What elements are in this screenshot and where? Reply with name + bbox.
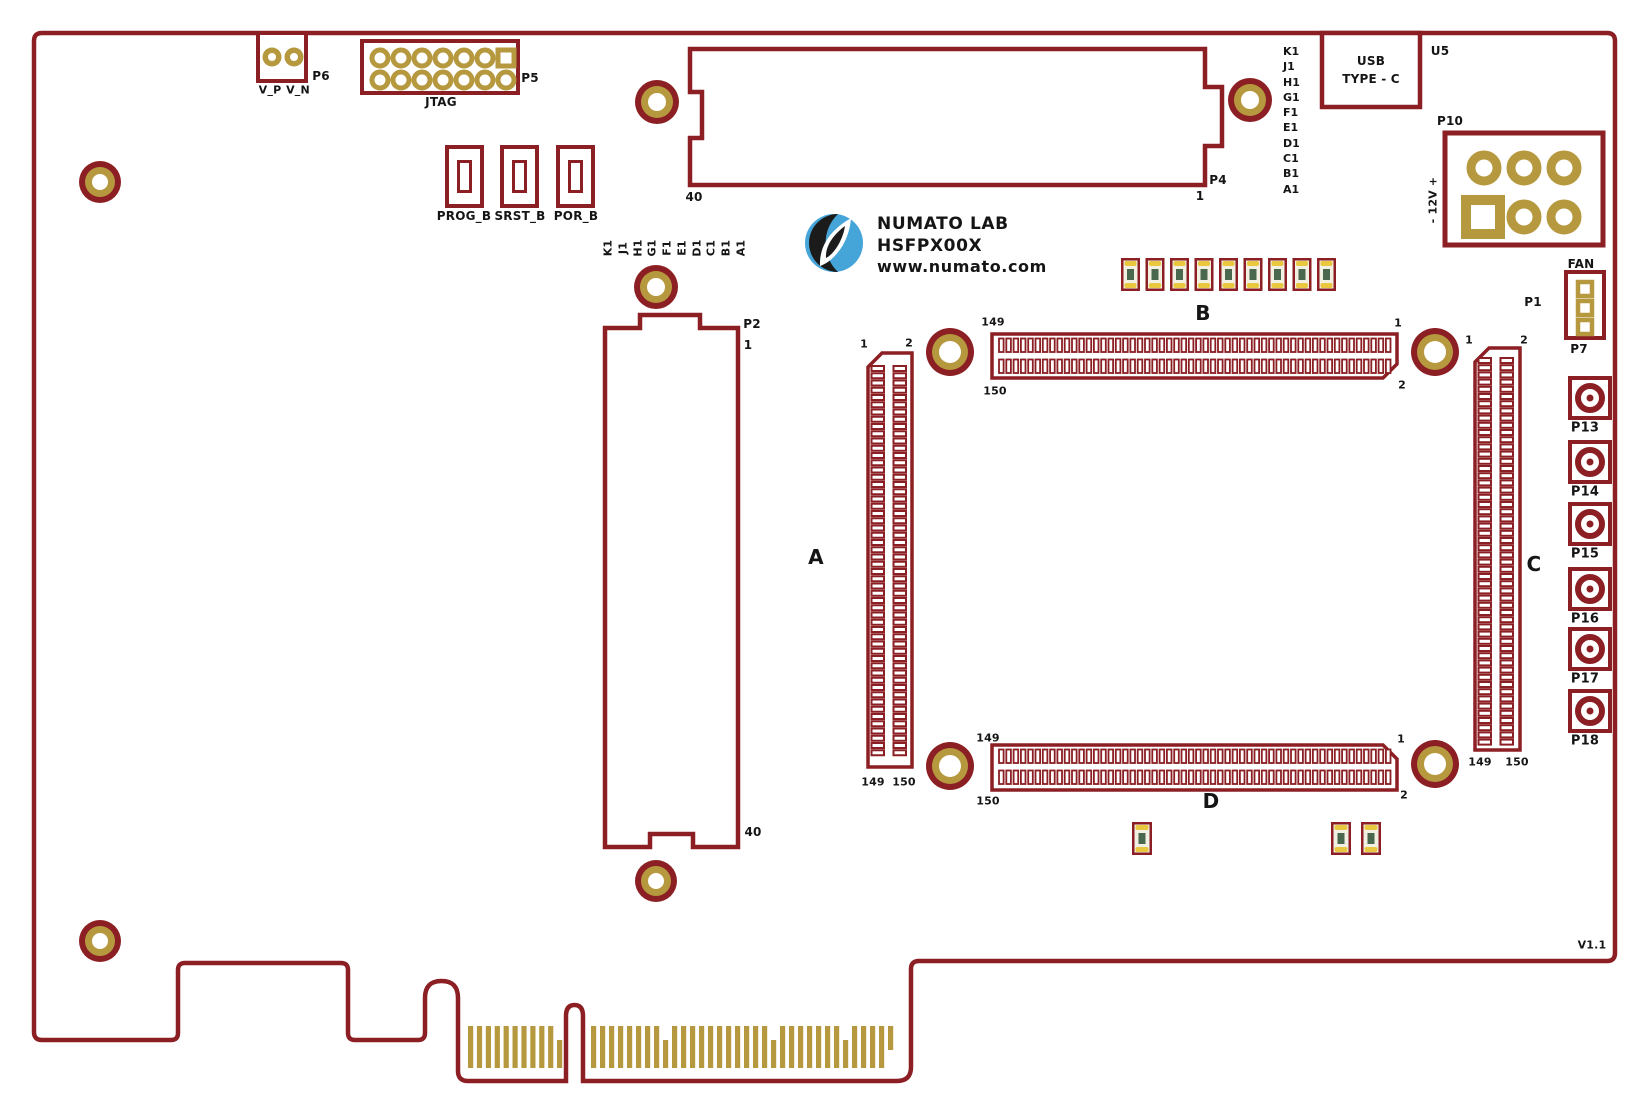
connector-pad [1276,750,1281,764]
switch-label-por-b: POR_B [554,210,598,222]
connector-pad [1233,360,1238,374]
p4-signal-d1: D1 [1283,138,1300,149]
connector-pad [1479,718,1492,723]
connector-pad [1079,750,1084,764]
pcie-gold-finger [798,1026,803,1068]
coax-port-label-p18: P18 [1571,735,1599,748]
connector-pad [1479,531,1492,536]
connector-pad [1006,360,1011,374]
connector-pad [1276,360,1281,374]
connector-pad [1101,360,1106,374]
connector-pad [1501,725,1514,730]
pcie-gold-finger [636,1026,641,1068]
connector-pad [1028,339,1033,353]
connector-pad [1021,771,1026,785]
board-outline [34,33,1615,1081]
connector-pad [894,685,907,690]
connector-pad [1196,771,1201,785]
jtag-hole [393,72,409,88]
connector-pad [1160,750,1165,764]
connector-pad [1364,339,1369,353]
p2-pin1-label: 1 [744,339,753,351]
p4-signal-a1: A1 [1283,184,1300,195]
led-terminal [1247,283,1259,288]
jtag-hole [477,50,493,66]
connector-pad [1276,771,1281,785]
connector-pad [1247,771,1252,785]
connector-pad [894,402,907,407]
a-pin1: 1 [860,339,868,350]
connector-pad [1152,771,1157,785]
connector-pad [872,671,885,676]
pcie-gold-finger [618,1026,623,1068]
p10-polarity-label: - 12V + [1428,177,1439,224]
connector-pad [1357,360,1362,374]
connector-pad [1298,360,1303,374]
connector-pad [1094,339,1099,353]
p10-ref: P10 [1437,115,1463,127]
led-terminal [1223,261,1235,266]
led-die [1274,269,1281,280]
connector-pad [894,431,907,436]
connector-pad [1479,380,1492,385]
connector-pad [872,562,885,567]
numato-logo-icon [805,214,863,272]
connector-p2 [605,315,738,847]
connector-pad [894,504,907,509]
connector-pad [1501,480,1514,485]
p4-ref: P4 [1209,174,1227,186]
connector-pad [872,555,885,560]
connector-pad [1501,444,1514,449]
connector-pad [999,771,1004,785]
led-terminal [1136,847,1149,852]
connector-pad [894,540,907,545]
connector-pad [894,584,907,589]
connector-pad [1479,675,1492,680]
connector-pad [1057,360,1062,374]
connector-pad [1501,423,1514,428]
p4-signal-g1: G1 [1283,92,1300,103]
led-terminal [1125,261,1137,266]
mounting-hole-bore [648,873,664,889]
connector-pad [1479,401,1492,406]
pcie-gold-finger [468,1026,473,1068]
pcie-gold-finger [591,1026,596,1068]
connector-pad [1298,771,1303,785]
c-pin150: 150 [1505,757,1529,768]
connector-pad [1335,771,1340,785]
connector-pad [1501,740,1514,745]
connector-pad [1036,750,1041,764]
led-terminal [1321,261,1333,266]
connector-pad [872,468,885,473]
connector-pad [1043,771,1048,785]
connector-pad [872,518,885,523]
connector-pad [1094,750,1099,764]
connector-pad [1116,771,1121,785]
switch-label-prog-b: PROG_B [437,210,491,222]
connector-pad [1479,552,1492,557]
connector-pad [1501,567,1514,572]
pcie-gold-finger [504,1026,509,1068]
connector-pad [1225,339,1230,353]
connector-pad [1501,732,1514,737]
connector-pad [1160,771,1165,785]
connector-pad [1501,603,1514,608]
connector-pad [1479,624,1492,629]
connector-pad [1109,360,1114,374]
connector-pad [1501,653,1514,658]
connector-pad [894,453,907,458]
connector-pad [1479,430,1492,435]
connector-pad [872,613,885,618]
jtag-hole [435,50,451,66]
connector-pad [1218,771,1223,785]
p4-signal-e1: E1 [1283,122,1300,133]
pcie-gold-finger [513,1026,518,1068]
pcie-gold-finger [744,1026,749,1068]
connector-pad [894,678,907,683]
connector-pad [1501,610,1514,615]
connector-pad [1501,416,1514,421]
connector-pad [1014,360,1019,374]
p6-pin-vn-label: V_N [286,85,310,96]
connector-pad [872,721,885,726]
connector-pad [894,395,907,400]
d-pin2: 2 [1400,790,1408,801]
b-pin149: 149 [981,317,1005,328]
led-terminal [1149,283,1161,288]
led-terminal [1174,261,1186,266]
led-die [1368,833,1375,844]
led-die [1323,269,1330,280]
connector-pad [872,678,885,683]
connector-pad [1043,360,1048,374]
a-pin149: 149 [861,777,885,788]
connector-pad [1501,394,1514,399]
connector-pad [1036,360,1041,374]
connector-pad [1335,360,1340,374]
connector-pad [1479,480,1492,485]
connector-pad [1379,771,1384,785]
pcie-gold-finger [834,1026,839,1068]
connector-pad [1342,360,1347,374]
connector-pad [1057,339,1062,353]
connector-pad [1182,339,1187,353]
connector-pad [1087,750,1092,764]
connector-pad [1072,750,1077,764]
connector-pad [1306,771,1311,785]
jtag-hole [393,50,409,66]
connector-pad [894,620,907,625]
connector-pad [872,634,885,639]
connector-pad [872,576,885,581]
connector-pad [1479,704,1492,709]
connector-pad [872,453,885,458]
led-terminal [1136,825,1149,830]
connector-pad [1021,750,1026,764]
connector-pad [1152,750,1157,764]
connector-pad [1043,750,1048,764]
p4-signal-b1: B1 [1283,168,1300,179]
connector-pad [1342,339,1347,353]
connector-pad [1479,495,1492,500]
connector-pad [1501,488,1514,493]
connector-pad [1101,750,1106,764]
p6-pin-vp-label: V_P [259,85,282,96]
pcie-gold-finger [825,1026,830,1068]
connector-pad [1501,502,1514,507]
connector-pad [1028,360,1033,374]
connector-pad [872,460,885,465]
connector-pad [1501,617,1514,622]
connector-pad [1479,668,1492,673]
connector-pad [1240,339,1245,353]
connector-pad [1152,360,1157,374]
led-die [1250,269,1257,280]
connector-pad [1349,771,1354,785]
mounting-hole-bore [648,93,666,111]
connector-pad [872,482,885,487]
connector-pad [1291,339,1296,353]
usb-ref: U5 [1431,45,1450,57]
connector-pad [1479,725,1492,730]
connector-pad [1174,360,1179,374]
connector-pad [1196,750,1201,764]
led-terminal [1247,261,1259,266]
connector-pad [1218,360,1223,374]
pcie-gold-finger [486,1026,491,1068]
connector-pad [1313,339,1318,353]
connector-pad [1479,596,1492,601]
pcie-gold-finger [690,1026,695,1068]
connector-pad [894,475,907,480]
led-terminal [1321,283,1333,288]
connector-pad [1349,339,1354,353]
connector-pad [1189,360,1194,374]
coax-port-label-p15: P15 [1571,548,1599,561]
connector-pad [894,489,907,494]
usb-label-line2: TYPE - C [1342,73,1400,85]
switch-prog-b [447,147,482,206]
connector-pad [1479,538,1492,543]
connector-pad [1501,509,1514,514]
connector-pad [872,729,885,734]
pcie-gold-finger [735,1026,740,1068]
connector-pad [1479,365,1492,370]
connector-pad [1065,360,1070,374]
connector-pad [1057,771,1062,785]
connector-pad [1021,360,1026,374]
led-die [1127,269,1134,280]
connector-pad [894,468,907,473]
p4-pin1-label: 1 [1196,190,1205,202]
connector-pad [894,627,907,632]
connector-pad [1284,360,1289,374]
connector-pad [894,482,907,487]
connector-pad [1501,581,1514,586]
connector-pad [872,446,885,451]
pcie-gold-finger [717,1026,722,1068]
led-die [1152,269,1159,280]
connector-pad [894,634,907,639]
led-terminal [1272,283,1284,288]
connector-pad [872,475,885,480]
connector-pad [1087,360,1092,374]
connector-pad [1109,771,1114,785]
connector-pad [1357,771,1362,785]
mounting-hole-bore [92,174,108,190]
connector-pad [894,555,907,560]
connector-pad [1196,360,1201,374]
connector-pad [894,511,907,516]
c-pin1: 1 [1465,335,1473,346]
connector-pad [1262,771,1267,785]
connector-pad [1262,750,1267,764]
connector-pad [1479,387,1492,392]
pcie-gold-finger [654,1026,659,1068]
connector-pad [1138,750,1143,764]
connector-pad [1291,360,1296,374]
connector-pad [872,424,885,429]
connector-pad [1479,660,1492,665]
pcie-gold-finger [663,1040,668,1068]
connector-pad [1284,771,1289,785]
connector-pad [1145,771,1150,785]
connector-pad [1501,632,1514,637]
connector-pad [1386,771,1391,785]
connector-pad [1130,750,1135,764]
connector-pad [1479,632,1492,637]
connector-pad [1189,771,1194,785]
connector-pad [1006,339,1011,353]
pcie-gold-finger [627,1026,632,1068]
connector-pad [894,721,907,726]
connector-pad [1306,360,1311,374]
connector-pad [1342,750,1347,764]
connector-pad [872,649,885,654]
mounting-hole-bore [647,278,665,296]
connector-pad [894,707,907,712]
connector-pad [872,584,885,589]
mounting-hole-bore [939,341,961,363]
connector-pad [1501,704,1514,709]
connector-pad [1313,360,1318,374]
connector-pad [1501,588,1514,593]
pcie-gold-finger [807,1026,812,1068]
connector-pad [1379,339,1384,353]
connector-pad [1240,750,1245,764]
connector-pad [894,446,907,451]
led-die [1201,269,1208,280]
connector-pad [872,663,885,668]
connector-pad [872,743,885,748]
connector-pad [1101,771,1106,785]
connector-pad [1386,360,1391,374]
connector-pad [894,671,907,676]
connector-pad [1218,339,1223,353]
connector-pad [1021,339,1026,353]
connector-pad [872,497,885,502]
pcie-gold-finger [753,1026,758,1068]
connector-pad [1386,339,1391,353]
p4-signal-f1: F1 [1283,107,1300,118]
connector-pad [1094,360,1099,374]
connector-pad [1479,459,1492,464]
led-terminal [1335,847,1348,852]
connector-pad [894,743,907,748]
connector-pad [1479,488,1492,493]
mounting-hole-bore [1241,91,1259,109]
connector-pad [872,598,885,603]
mounting-hole-bore [92,933,108,949]
connector-pad [1320,360,1325,374]
coax-center-pin [1587,708,1594,715]
product-name: HSFPX00X [877,238,982,255]
p2-pin40-label: 40 [744,826,761,838]
connector-pad [1479,567,1492,572]
connector-pad [1152,339,1157,353]
connector-pad [1501,365,1514,370]
pcie-gold-finger [539,1026,544,1068]
connector-pad [1479,502,1492,507]
pcie-gold-finger [645,1026,650,1068]
connector-pad [1320,339,1325,353]
board-drawing [0,0,1650,1103]
connector-a-label: A [808,547,824,567]
connector-pad [894,562,907,567]
connector-pad [1501,668,1514,673]
fan-label: FAN [1568,258,1595,270]
connector-pad [1479,574,1492,579]
connector-pad [1479,372,1492,377]
connector-pad [1225,771,1230,785]
pcie-gold-finger [861,1026,866,1068]
connector-pad [1501,660,1514,665]
connector-pad [1501,531,1514,536]
connector-pad [1255,750,1260,764]
connector-pad [1479,653,1492,658]
led-terminal [1125,283,1137,288]
connector-pad [894,692,907,697]
connector-pad [894,598,907,603]
connector-pad [1079,339,1084,353]
coax-center-pin [1587,646,1594,653]
connector-pad [1189,750,1194,764]
connector-pad [1371,360,1376,374]
c-pin2: 2 [1520,335,1528,346]
p4-signal-c1: C1 [1283,153,1300,164]
switch-por-b [558,147,593,206]
connector-pad [1043,339,1048,353]
connector-pad [872,714,885,719]
connector-pad [894,729,907,734]
fan-p7-ref: P7 [1570,343,1588,355]
connector-pad [872,736,885,741]
connector-pad [1501,524,1514,529]
connector-pad [872,417,885,422]
connector-pad [894,613,907,618]
pcie-gold-finger [780,1026,785,1068]
pcie-gold-finger [530,1026,535,1068]
connector-pad [1167,750,1172,764]
connector-pad [872,489,885,494]
mounting-hole-bore [1424,753,1446,775]
connector-pad [1130,360,1135,374]
led-terminal [1296,261,1308,266]
connector-pad [872,627,885,632]
